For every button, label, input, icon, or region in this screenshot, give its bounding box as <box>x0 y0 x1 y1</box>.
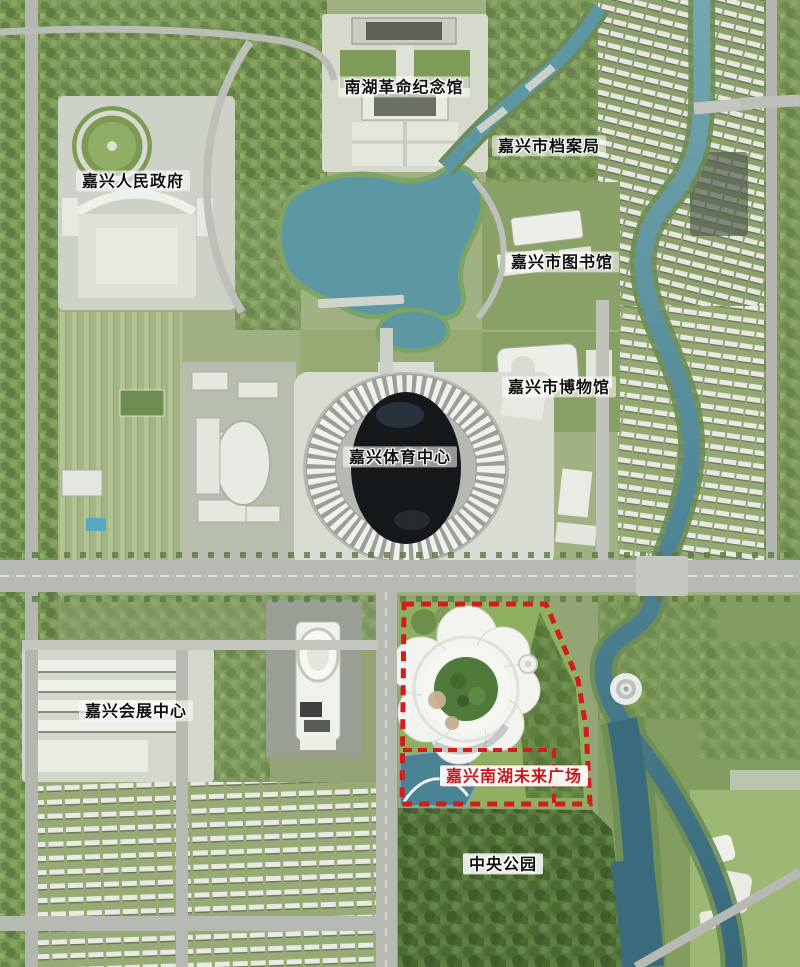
central-park-trees <box>398 808 622 967</box>
ring-pavilion <box>610 673 642 705</box>
white-tower-building <box>266 600 362 758</box>
label-city-museum: 嘉兴市博物馆 <box>502 376 616 397</box>
label-central-park: 中央公园 <box>463 853 543 874</box>
aerial-map: 南湖革命纪念馆 嘉兴市档案局 嘉兴人民政府 嘉兴市图书馆 嘉兴市博物馆 嘉兴体育… <box>0 0 800 967</box>
label-city-library: 嘉兴市图书馆 <box>505 251 619 272</box>
aerial-map-graphic <box>0 0 800 967</box>
label-sports-center: 嘉兴体育中心 <box>343 446 457 467</box>
label-nanhu-revolution-memorial: 南湖革命纪念馆 <box>338 76 469 97</box>
flower-courtyard <box>434 657 498 721</box>
label-nanhu-future-plaza: 嘉兴南湖未来广场 <box>440 765 588 786</box>
river-bridge <box>636 556 688 596</box>
label-convention-center: 嘉兴会展中心 <box>79 700 193 721</box>
label-people-government: 嘉兴人民政府 <box>76 170 190 191</box>
label-city-archives-bureau: 嘉兴市档案局 <box>492 135 606 156</box>
